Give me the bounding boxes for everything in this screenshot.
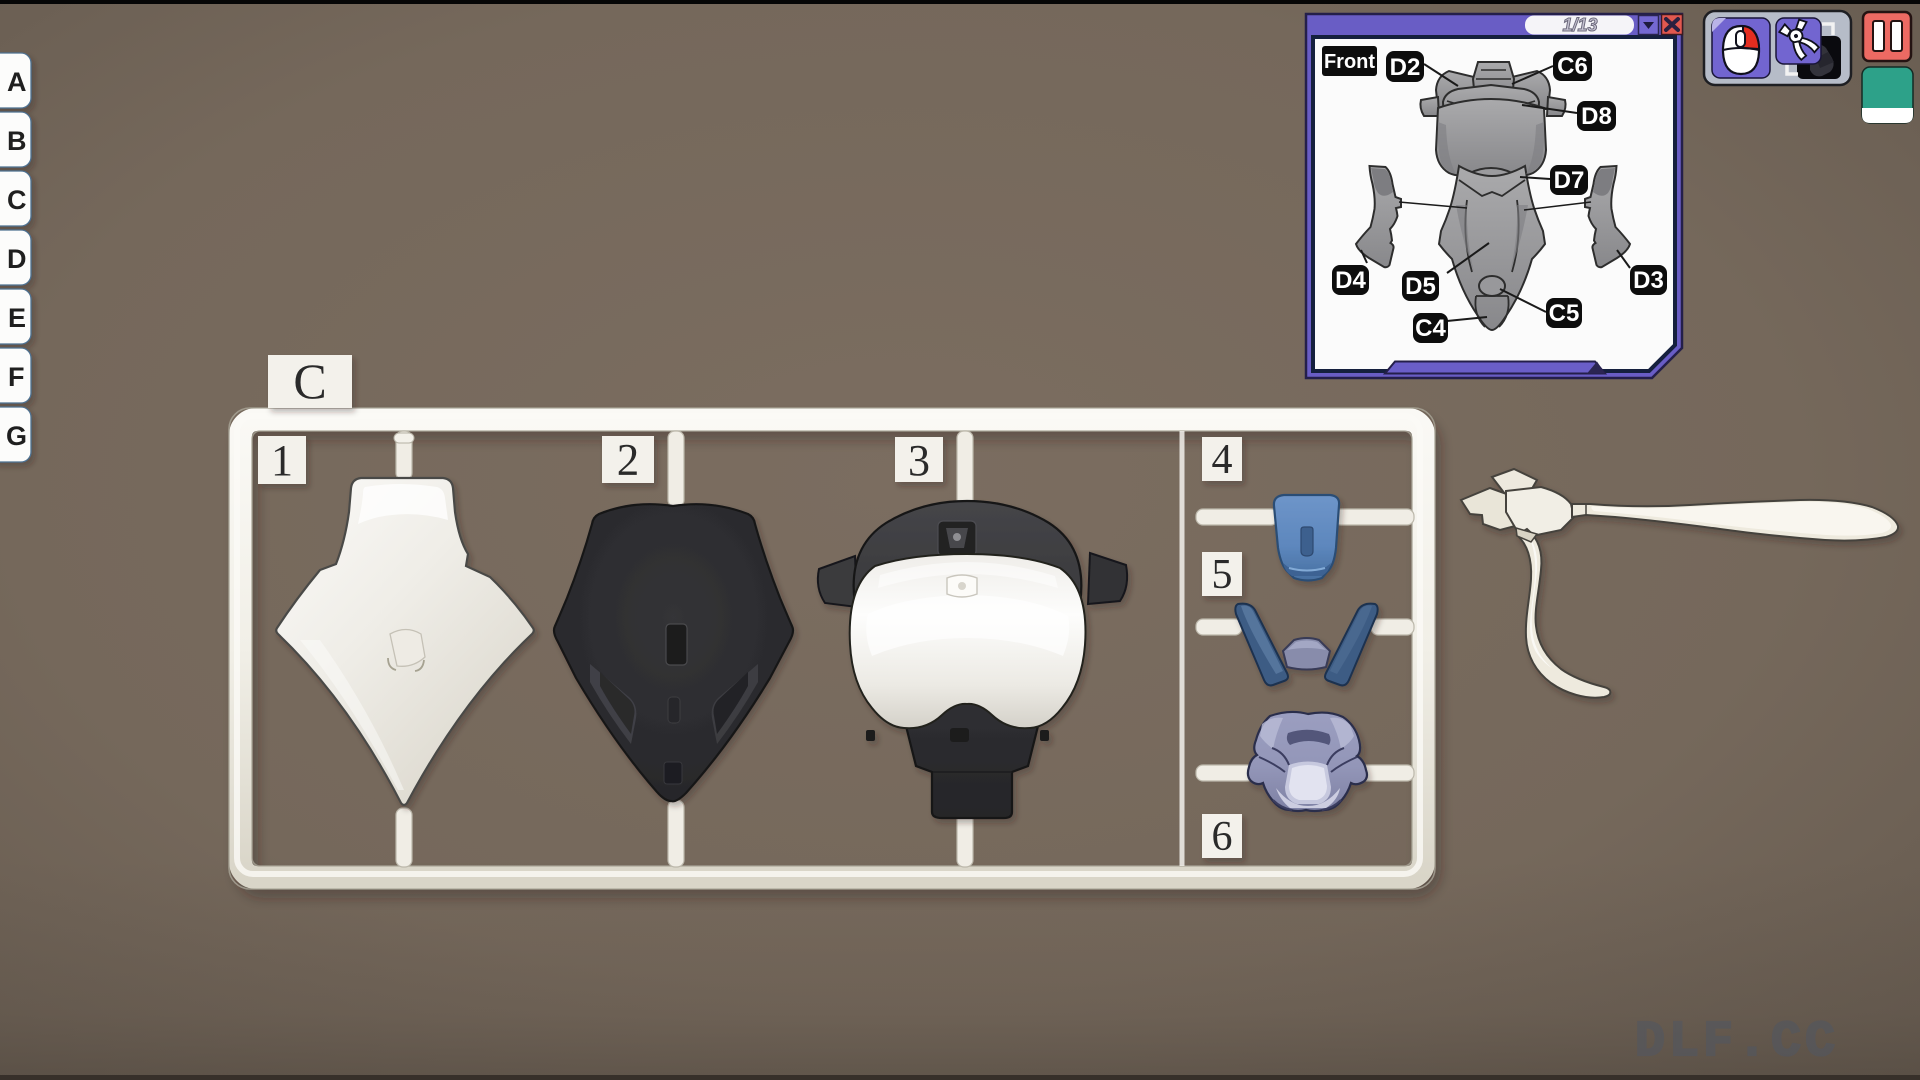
- svg-text:D7: D7: [1554, 167, 1585, 194]
- svg-text:D5: D5: [1405, 273, 1436, 300]
- svg-text:C5: C5: [1549, 300, 1580, 327]
- svg-text:C4: C4: [1415, 315, 1446, 342]
- svg-text:D8: D8: [1581, 103, 1612, 130]
- svg-text:1/13: 1/13: [1562, 15, 1597, 35]
- svg-text:A: A: [7, 67, 27, 97]
- svg-text:C6: C6: [1557, 53, 1588, 80]
- svg-text:DLF.CC: DLF.CC: [1635, 1014, 1839, 1071]
- svg-text:G: G: [6, 421, 27, 451]
- svg-text:C: C: [7, 185, 27, 215]
- svg-text:C: C: [293, 353, 326, 409]
- svg-text:2: 2: [617, 435, 640, 485]
- svg-text:1: 1: [271, 436, 293, 485]
- svg-text:D3: D3: [1633, 267, 1664, 294]
- svg-text:6: 6: [1212, 814, 1233, 860]
- svg-text:E: E: [8, 303, 26, 333]
- svg-text:3: 3: [908, 436, 930, 485]
- svg-text:D4: D4: [1335, 267, 1366, 294]
- svg-text:Front: Front: [1324, 51, 1375, 73]
- svg-text:F: F: [8, 362, 25, 392]
- svg-text:D: D: [7, 244, 27, 274]
- svg-text:4: 4: [1212, 437, 1233, 483]
- svg-text:B: B: [7, 126, 27, 156]
- svg-text:5: 5: [1212, 552, 1233, 598]
- svg-text:D2: D2: [1390, 54, 1421, 81]
